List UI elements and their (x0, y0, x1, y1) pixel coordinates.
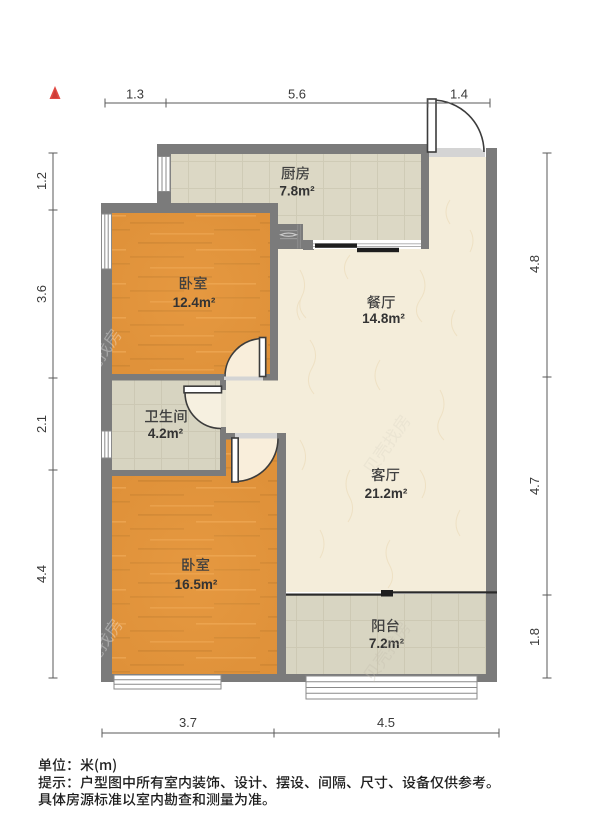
svg-text:2.1: 2.1 (34, 415, 49, 433)
svg-text:14.8m²: 14.8m² (362, 311, 405, 326)
svg-text:4.8: 4.8 (527, 255, 542, 273)
svg-text:3.7: 3.7 (179, 715, 197, 730)
svg-text:5.6: 5.6 (288, 87, 306, 102)
svg-text:12.4m²: 12.4m² (173, 295, 216, 310)
svg-text:1.2: 1.2 (34, 172, 49, 190)
svg-text:4.4: 4.4 (34, 565, 49, 583)
svg-text:4.2m²: 4.2m² (148, 426, 184, 441)
svg-text:21.2m²: 21.2m² (365, 486, 408, 501)
svg-text:1.3: 1.3 (126, 87, 144, 102)
svg-text:4.5: 4.5 (377, 715, 395, 730)
svg-text:1.8: 1.8 (527, 628, 542, 646)
svg-text:7.8m²: 7.8m² (279, 184, 315, 199)
svg-text:3.6: 3.6 (34, 285, 49, 303)
svg-text:16.5m²: 16.5m² (175, 577, 218, 592)
svg-text:1.4: 1.4 (450, 87, 468, 102)
svg-text:4.7: 4.7 (527, 477, 542, 495)
svg-text:7.2m²: 7.2m² (369, 636, 405, 651)
